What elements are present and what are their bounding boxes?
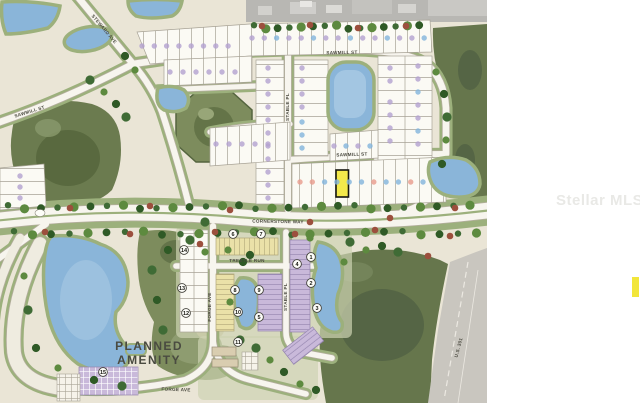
pond-east [428,157,480,197]
tree-icon [393,247,402,256]
tree-icon [372,227,379,234]
lot-status-dot [299,35,304,40]
tree-icon [312,386,320,394]
parcel-marker-number: 15 [100,370,106,376]
parcel-marker-number: 13 [179,286,185,292]
tree-icon [392,23,398,29]
tree-icon [384,204,392,212]
street-label-trestle-run: TRESTLE RUN [229,258,265,263]
tree-icon [90,376,98,384]
tree-icon [252,206,258,212]
lot-status-dot [299,145,304,150]
street-label-sawmill-st: SAWMILL ST [326,50,357,56]
tree-icon [269,227,277,235]
lot-row-center [210,122,290,166]
tree-icon [100,88,107,95]
lot-status-dot [265,195,270,200]
tree-icon [401,204,407,210]
tree-icon [201,248,208,255]
lot-status-dot [343,143,348,148]
aerial-blob [428,0,487,16]
lot-status-dot [310,179,315,184]
lot-status-dot [415,128,420,133]
tree-icon [403,23,410,30]
tree-icon [292,231,299,238]
lot-status-dot [299,65,304,70]
lot-status-dot [193,69,198,74]
tree-icon [235,201,243,209]
tree-icon [194,229,203,238]
tree-icon [104,203,110,209]
tree-icon [317,202,326,211]
lot-status-dot [265,117,270,122]
condo-grid-block [79,367,138,395]
parcel-marker-15: 15 [99,368,108,377]
parcel-marker-7: 7 [257,230,266,239]
tree-icon [380,228,388,236]
tree-icon [54,364,61,371]
tree-icon [168,203,177,212]
tree-icon [455,230,461,236]
lot-status-dot [367,143,372,148]
tree-icon [121,112,130,121]
lot-status-dot [371,179,376,184]
forest-blotch [36,130,100,186]
road-surface [0,210,487,221]
tree-icon [367,23,376,32]
forest-blotch [35,119,61,137]
tree-icon [153,205,159,211]
tree-icon [380,23,388,31]
tree-icon [127,231,134,238]
tree-icon [416,230,425,239]
park-blotch [198,108,214,120]
parcel-marker-5: 5 [255,313,264,322]
lot-status-dot [239,141,244,146]
parcel-marker-1: 1 [307,253,316,262]
tree-icon [340,258,347,265]
parcel-marker-number: 7 [259,232,262,238]
tree-icon [218,201,227,210]
aerial-blob [258,6,272,15]
tree-icon [47,230,55,238]
tree-icon [153,296,161,304]
lot-status-dot [265,65,270,70]
lot-status-dot [311,35,316,40]
lot-status-dot [265,182,270,187]
street-label-cornerstone-way: CORNERSTONE WAY [252,219,304,225]
lot-status-dot [265,156,270,161]
lot-status-dot [299,78,304,83]
tree-icon [136,205,144,213]
pond-highlight [334,70,366,118]
tree-icon [274,24,282,32]
tree-icon [164,246,172,254]
tree-icon [351,202,357,208]
lot-status-dot [249,35,254,40]
tree-icon [297,22,306,31]
townhomes-purple-a [258,274,282,331]
forest-blotch [340,289,424,361]
tree-icon [433,203,441,211]
tree-icon [119,201,128,210]
tree-icon [103,229,111,237]
amenity-parking [242,352,258,370]
tree-icon [436,230,444,238]
tree-icon [54,204,60,210]
lot-status-dot [387,65,392,70]
tree-icon [117,381,126,390]
tree-icon [121,52,129,60]
lot-status-dot [359,179,364,184]
lot-status-dot [206,69,211,74]
lot-status-dot [409,35,414,40]
lot-status-dot [415,63,420,68]
tree-icon [197,241,204,248]
tree-icon [158,231,166,239]
tree-icon [332,21,341,30]
tree-icon [442,136,449,143]
tree-icon [147,265,156,274]
aerial-blob [300,1,312,7]
tree-icon [432,68,439,75]
tree-icon [5,202,11,208]
tree-icon [447,233,454,240]
parcel-marker-11: 11 [234,338,243,347]
lot-status-dot [262,35,267,40]
lot-status-dot [164,43,169,48]
parcel-marker-2: 2 [307,279,316,288]
lot-status-dot [286,35,291,40]
lot-status-dot [415,89,420,94]
lot-status-dot [189,43,194,48]
tree-icon [307,22,314,29]
lot-status-dot [265,169,270,174]
tree-icon [85,75,94,84]
tree-icon [28,230,37,239]
street-label-stable-pl: STABLE PL [285,93,290,121]
tree-icon [212,229,219,236]
lot-status-dot [265,91,270,96]
tree-icon [285,204,293,212]
tree-icon [425,253,432,260]
lot-status-dot [348,35,353,40]
parcel-marker-number: 8 [233,288,236,294]
tree-icon [251,343,260,352]
lot-status-dot [331,143,336,148]
pond-near-octagon [157,86,189,111]
tree-icon [226,298,233,305]
tree-icon [186,203,194,211]
tree-icon [158,325,167,334]
street-label-forge-ave: FORGE AVE [161,386,190,392]
lot-status-dot [397,35,402,40]
tree-icon [280,368,288,376]
tree-icon [87,203,95,211]
tree-icon [387,215,394,222]
tree-icon [200,217,209,226]
tree-icon [267,204,276,213]
street-label-forge-ave: FORGE AVE [207,292,212,321]
lot-status-dot [323,35,328,40]
lot-status-dot [383,179,388,184]
tree-icon [472,228,481,237]
lot-status-dot [201,43,206,48]
tree-icon [378,242,386,250]
lot-status-dot [299,119,304,124]
parcel-marker-3: 3 [313,304,322,313]
lot-status-dot [274,35,279,40]
lot-status-dot [226,141,231,146]
lot-status-dot [335,35,340,40]
tree-icon [355,25,362,32]
road-shield [35,210,45,217]
parcel-marker-number: 1 [309,255,312,261]
lot-status-dot [265,141,270,146]
aerial-blob [326,5,342,13]
tree-icon [438,160,446,168]
lot-status-dot [299,104,304,109]
parcel-marker-12: 12 [182,309,191,318]
tree-icon [11,228,17,234]
lot-status-dot [408,179,413,184]
aerial-blob [398,4,416,13]
tree-icon [362,246,369,253]
lot-column-stable-east [294,60,328,156]
lot-status-dot [152,43,157,48]
tree-icon [131,66,138,73]
tree-icon [203,203,209,209]
lot-status-dot [415,76,420,81]
parcel-marker-number: 12 [183,311,189,317]
tree-icon [177,231,183,237]
lot-status-dot [232,69,237,74]
tree-icon [296,380,303,387]
aerial-photo-strip [246,0,487,22]
tree-icon [32,344,40,352]
lot-status-dot [219,69,224,74]
tree-icon [345,237,354,246]
tree-icon [325,230,333,238]
tree-icon [415,21,423,29]
tree-icon [259,23,266,30]
amenity-building [212,347,236,356]
lot-status-dot [422,35,427,40]
tree-icon [286,24,292,30]
lot-status-dot [415,141,420,146]
tree-icon [185,235,194,244]
pond-trestle [234,278,259,329]
watermark-accent-bar [632,277,639,297]
lot-status-dot [385,35,390,40]
aerial-blob [352,0,392,14]
lot-status-dot [17,184,22,189]
tree-icon [334,202,342,210]
parcel-marker-number: 11 [235,340,241,346]
parcel-marker-8: 8 [231,286,240,295]
tree-icon [416,202,425,211]
tree-icon [139,227,148,236]
lot-status-dot [372,35,377,40]
forest-blotch [458,50,482,90]
parcel-marker-number: 10 [235,310,241,316]
lot-status-dot [322,179,327,184]
tree-icon [20,204,29,213]
area-labels: PLANNEDAMENITY [115,339,183,367]
lot-status-dot [387,78,392,83]
lot-status-dot [139,43,144,48]
parcel-marker-number: 5 [257,315,260,321]
tree-icon [345,25,353,33]
lot-status-dot [334,179,339,184]
tree-icon [67,205,74,212]
tree-icon [440,90,448,98]
lot-status-dot [396,179,401,184]
tree-icon [361,228,370,237]
tree-icon [147,203,154,210]
lot-status-dot [297,179,302,184]
lot-status-dot [252,141,257,146]
lot-status-dot [17,195,22,200]
stellar-mls-watermark: Stellar MLS [556,192,640,209]
lot-status-dot [355,143,360,148]
lot-status-dot [387,125,392,130]
lot-status-dot [265,104,270,109]
tree-icon [307,219,314,226]
townhomes-purple-b [290,240,310,332]
parcel-marker-13: 13 [178,284,187,293]
tree-icon [302,204,308,210]
lot-status-dot [167,69,172,74]
lot-status-dot [415,102,420,107]
tree-icon [23,305,32,314]
lot-status-dot [265,78,270,83]
lot-status-dot [387,112,392,117]
area-label-planned: PLANNED [115,339,183,353]
tree-icon [399,228,405,234]
small-lot-grid-sw [57,374,80,401]
lot-status-dot [299,132,304,137]
pond-north [128,0,182,18]
parcel-marker-number: 14 [181,248,188,254]
amenity-building [212,359,238,367]
tree-icon [224,246,231,253]
parcel-marker-6: 6 [229,230,238,239]
parcel-marker-number: 2 [309,281,312,287]
tree-icon [227,207,234,214]
lot-status-dot [265,130,270,135]
tree-icon [452,205,459,212]
area-label-amenity: AMENITY [117,353,181,367]
tree-icon [66,230,72,236]
parcel-marker-number: 3 [315,306,318,312]
tree-icon [251,22,257,28]
tree-icon [20,272,27,279]
lot-status-dot [213,141,218,146]
lot-status-dot [176,43,181,48]
street-label-stable-pl: STABLE PL [283,283,288,311]
tree-icon [266,356,273,363]
lot-status-dot [180,69,185,74]
lake-highlight [60,260,112,340]
parcel-marker-9: 9 [255,286,264,295]
lot-status-dot [299,91,304,96]
parcel-marker-number: 6 [231,232,234,238]
lot-status-dot [387,99,392,104]
tree-icon [465,201,474,210]
tree-icon [42,229,49,236]
parcel-marker-14: 14 [180,246,189,255]
tree-icon [442,112,451,121]
lot-status-dot [213,43,218,48]
parcel-marker-number: 9 [257,288,260,294]
tree-icon [366,204,375,213]
tree-icon [344,230,350,236]
screenshot-root: 123456789101112131415 STEWARD AVESAWMILL… [0,0,640,403]
pond-stable-east [312,242,342,332]
lot-status-dot [347,179,352,184]
tree-icon [112,100,120,108]
lot-status-dot [17,173,22,178]
tree-icon [306,234,313,241]
parcel-marker-10: 10 [234,308,243,317]
lot-status-dot [387,138,392,143]
lot-status-dot [415,115,420,120]
lot-status-dot [360,35,365,40]
site-plan-map: 123456789101112131415 STEWARD AVESAWMILL… [0,0,487,403]
lot-status-dot [420,179,425,184]
tree-icon [83,228,92,237]
tree-icon [322,23,328,29]
lot-status-dot [225,43,230,48]
parcel-marker-4: 4 [293,260,302,269]
